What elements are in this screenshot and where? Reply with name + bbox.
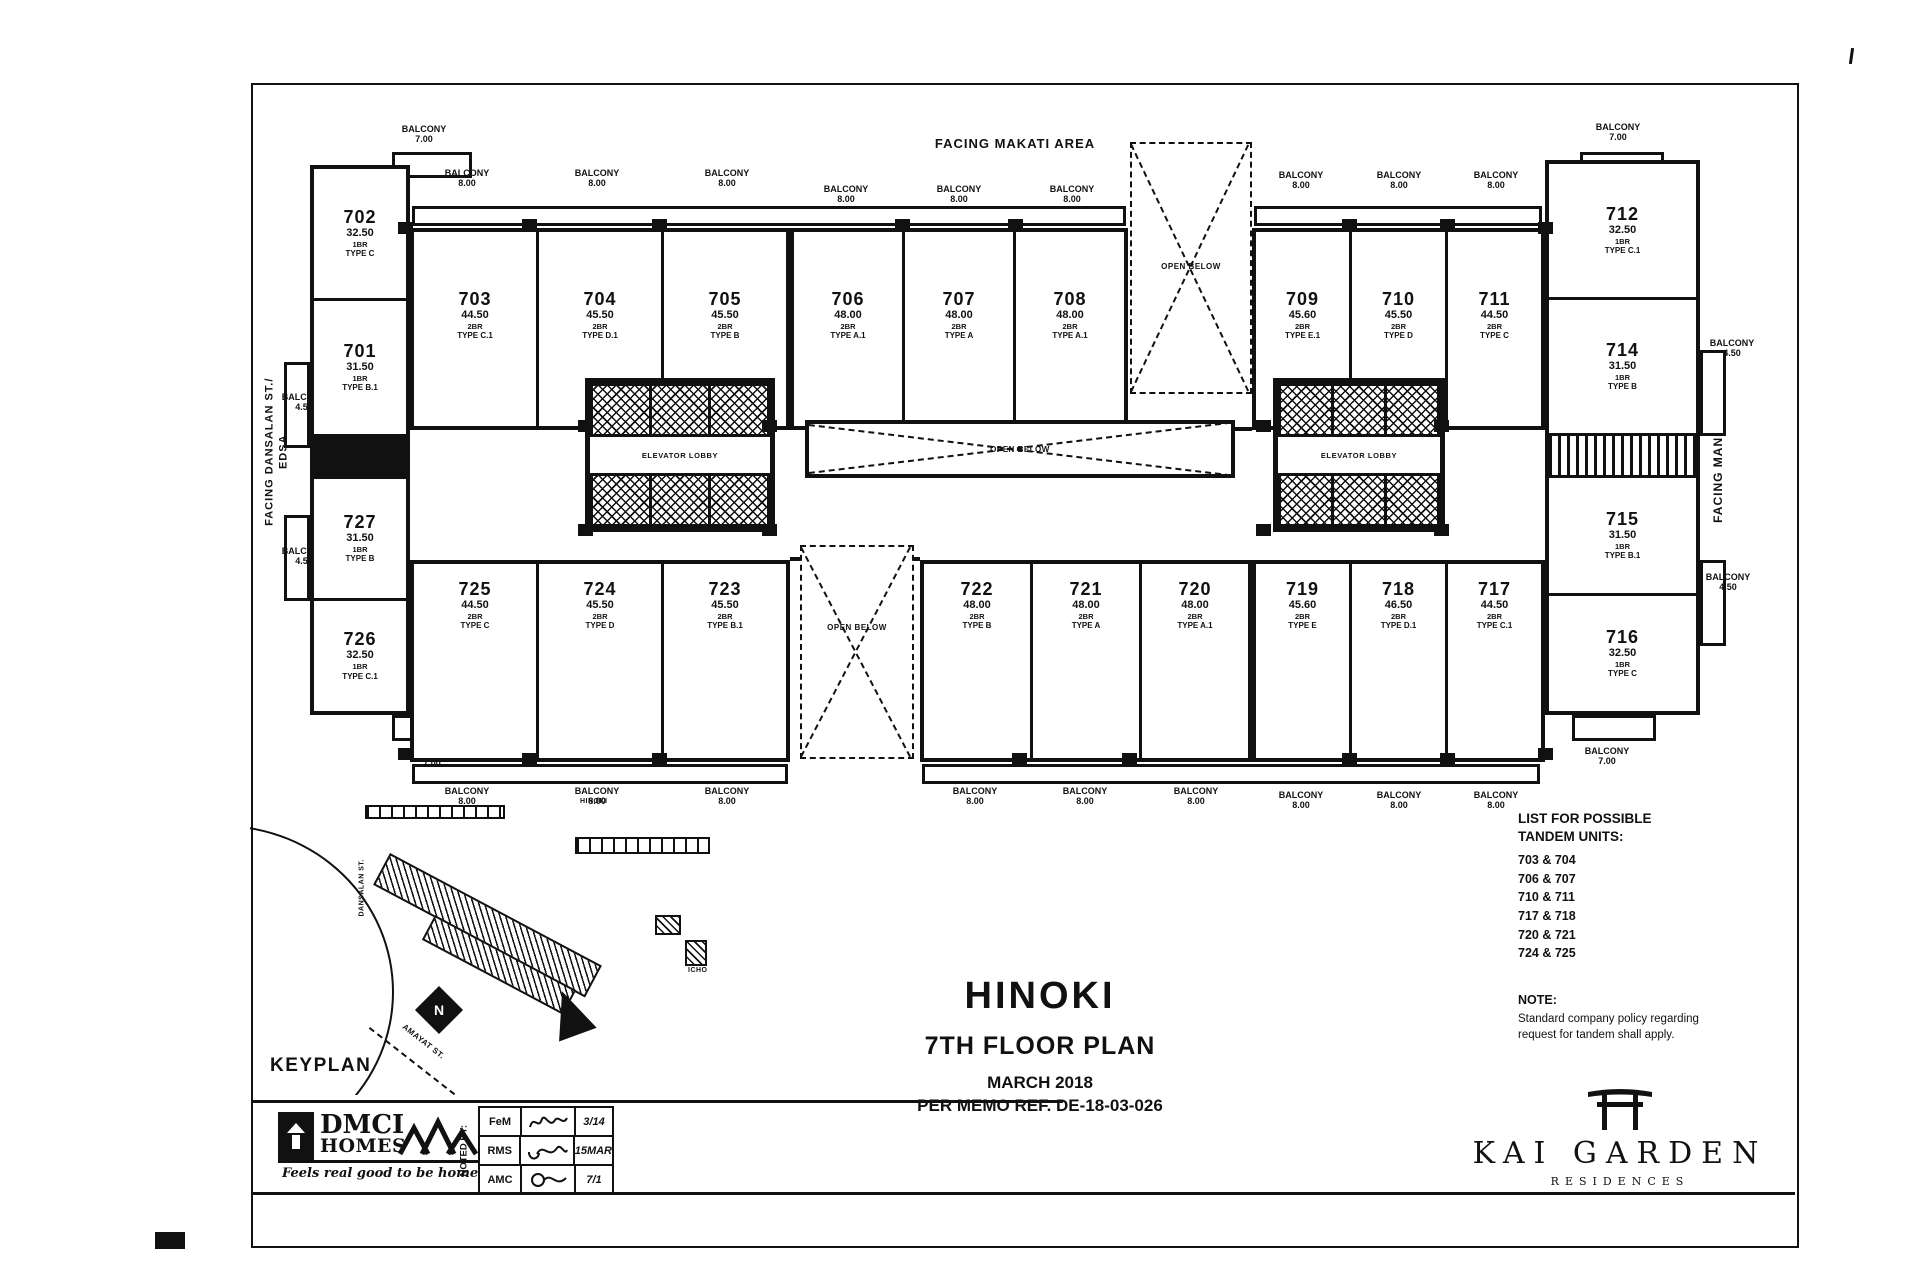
unit-720: 720 48.00 2BR TYPE A.1 — [1142, 564, 1248, 758]
keyplan-building — [655, 915, 681, 935]
table-row: AMC 7/1 — [480, 1166, 612, 1193]
column — [762, 420, 777, 432]
tandem-pair: 706 & 707 — [1518, 872, 1778, 888]
open-below-label: OPEN BELOW — [1132, 262, 1250, 271]
unit-no: 722 — [960, 580, 993, 599]
unit-no: 726 — [343, 630, 376, 649]
unit-area: 46.50 — [1385, 599, 1413, 612]
unit-area: 45.60 — [1289, 309, 1317, 322]
keyplan-road — [369, 1027, 528, 1095]
unit-type: TYPE A.1 — [1177, 621, 1212, 631]
unit-br: 2BR — [467, 612, 482, 621]
balcony-label: BALCONY4.50 — [1706, 572, 1751, 593]
unit-no: 707 — [942, 290, 975, 309]
tandem-pair: 720 & 721 — [1518, 928, 1778, 944]
project-title: HINOKI — [860, 975, 1220, 1018]
balcony-label: BALCONY8.00 — [824, 184, 869, 205]
unit-br: 2BR — [1295, 612, 1310, 621]
unit-no: 703 — [458, 290, 491, 309]
unit-type: TYPE D.1 — [582, 331, 618, 341]
unit-no: 706 — [831, 290, 864, 309]
balcony-label: BALCONY8.00 — [445, 168, 490, 189]
unit-area: 48.00 — [834, 309, 862, 322]
unit-area: 45.60 — [1289, 599, 1317, 612]
north-arrow-icon: N — [415, 986, 463, 1034]
unit-area: 31.50 — [346, 361, 374, 374]
signature-date: 7/1 — [576, 1166, 612, 1193]
note-line1: Standard company policy regarding — [1518, 1011, 1768, 1027]
dmci-house-icon — [278, 1112, 314, 1160]
unit-area: 48.00 — [1181, 599, 1209, 612]
unit-707: 707 48.00 2BR TYPE A — [905, 232, 1016, 426]
column — [578, 524, 593, 536]
unit-no: 705 — [708, 290, 741, 309]
elevator-lobby-east: ELEVATOR LOBBY — [1273, 378, 1445, 532]
title-block: HINOKI 7TH FLOOR PLAN MARCH 2018 PER MEM… — [860, 975, 1220, 1116]
unit-type: TYPE E.1 — [1285, 331, 1320, 341]
balcony-label: BALCONY8.00 — [937, 184, 982, 205]
elevator-lobby-label: ELEVATOR LOBBY — [1278, 437, 1440, 473]
unit-type: TYPE A — [945, 331, 974, 341]
dmci-logo: DMCI HOMES — [320, 1114, 406, 1155]
unit-area: 31.50 — [1609, 529, 1637, 542]
brand-subtitle: RESIDENCES — [1455, 1175, 1785, 1188]
unit-type: TYPE A.1 — [1052, 331, 1087, 341]
column — [1122, 753, 1137, 765]
unit-br: 2BR — [1487, 322, 1502, 331]
unit-br: 1BR — [1615, 542, 1630, 551]
unit-br: 1BR — [1615, 660, 1630, 669]
column — [652, 219, 667, 231]
keyplan-building-hinoki — [575, 837, 710, 854]
facing-dansalan-line1: FACING DANSALAN ST./ — [263, 357, 277, 547]
balcony-slab — [922, 764, 1540, 784]
unit-no: 704 — [583, 290, 616, 309]
keyplan-hinoki-label: HINOKI — [580, 798, 608, 805]
plan-date: MARCH 2018 — [860, 1073, 1220, 1093]
balcony-label: BALCONY8.00 — [575, 168, 620, 189]
unit-721: 721 48.00 2BR TYPE A — [1033, 564, 1142, 758]
unit-br: 2BR — [592, 612, 607, 621]
unit-726: 726 32.50 1BR TYPE C.1 — [314, 601, 406, 711]
elevator-shafts — [590, 473, 770, 527]
unit-area: 45.50 — [586, 309, 614, 322]
unit-area: 44.50 — [1481, 309, 1509, 322]
noted-by-table: FeM 3/14 RMS 15MAR AMC 7/1 — [478, 1106, 614, 1195]
unit-722: 722 48.00 2BR TYPE B — [924, 564, 1033, 758]
elevator-shafts — [1278, 383, 1440, 437]
balcony-label: BALCONY8.00 — [1279, 790, 1324, 811]
keyplan-map: HINOKI ICHO DANSALAN ST. AMAYAT ST. N KE… — [250, 795, 720, 1095]
unit-no: 727 — [343, 513, 376, 532]
balcony-label: BALCONY8.00 — [1377, 790, 1422, 811]
unit-area: 32.50 — [1609, 647, 1637, 660]
unit-br: 1BR — [1615, 373, 1630, 382]
unit-no: 714 — [1606, 341, 1639, 360]
unit-719: 719 45.60 2BR TYPE E — [1256, 564, 1352, 758]
unit-area: 31.50 — [1609, 360, 1637, 373]
open-below-label: OPEN BELOW — [809, 445, 1231, 454]
unit-725: 725 44.50 2BR TYPE C — [414, 564, 539, 758]
unit-type: TYPE B.1 — [707, 621, 743, 631]
signature — [522, 1108, 576, 1135]
open-below-void-bottom: OPEN BELOW — [800, 545, 914, 759]
unit-br: 2BR — [1391, 612, 1406, 621]
unit-no: 712 — [1606, 205, 1639, 224]
floor-plan-title: 7TH FLOOR PLAN — [860, 1032, 1220, 1061]
unit-714: 714 31.50 1BR TYPE B — [1549, 300, 1696, 436]
unit-br: 2BR — [1487, 612, 1502, 621]
balcony-slab — [412, 764, 788, 784]
unit-703: 703 44.50 2BR TYPE C.1 — [414, 232, 539, 426]
unit-type: TYPE C — [346, 249, 375, 259]
column — [1342, 753, 1357, 765]
unit-area: 45.50 — [711, 599, 739, 612]
unit-br: 2BR — [840, 322, 855, 331]
unit-strip-top-center: 706 48.00 2BR TYPE A.1 707 48.00 2BR TYP… — [790, 228, 1128, 430]
unit-br: 2BR — [717, 322, 732, 331]
unit-br: 2BR — [1187, 612, 1202, 621]
brand-name: KAI GARDEN — [1455, 1136, 1785, 1171]
unit-no: 710 — [1382, 290, 1415, 309]
unit-724: 724 45.50 2BR TYPE D — [539, 564, 664, 758]
kai-garden-logo: KAI GARDEN RESIDENCES — [1455, 1084, 1785, 1188]
unit-type: TYPE B — [711, 331, 740, 341]
unit-type: TYPE E — [1288, 621, 1316, 631]
tower-east: 712 32.50 1BR TYPE C.1 714 31.50 1BR TYP… — [1545, 160, 1700, 715]
column — [398, 748, 413, 760]
unit-no: 724 — [583, 580, 616, 599]
unit-area: 45.50 — [1385, 309, 1413, 322]
unit-no: 709 — [1286, 290, 1319, 309]
keyplan-building-bar — [365, 805, 505, 819]
signature — [522, 1166, 576, 1193]
facing-makati-label: FACING MAKATI AREA — [880, 136, 1150, 151]
elevator-shafts — [1278, 473, 1440, 527]
unit-718: 718 46.50 2BR TYPE D.1 — [1352, 564, 1448, 758]
unit-type: TYPE D — [586, 621, 615, 631]
memo-reference: PER MEMO REF. DE-18-03-026 — [860, 1096, 1220, 1116]
balcony-label: BALCONY8.00 — [1050, 184, 1095, 205]
column — [1342, 219, 1357, 231]
unit-br: 2BR — [592, 322, 607, 331]
unit-no: 720 — [1178, 580, 1211, 599]
tandem-list: LIST FOR POSSIBLE TANDEM UNITS: 703 & 70… — [1518, 810, 1778, 962]
floor-plan-sheet: FACING MAKATI AREA FACING AMENITIES FACI… — [0, 0, 1920, 1270]
unit-area: 32.50 — [346, 649, 374, 662]
unit-702: 702 32.50 1BR TYPE C — [314, 169, 406, 301]
approver-initials: RMS — [480, 1137, 521, 1164]
stair-core — [314, 437, 406, 479]
note-block: NOTE: Standard company policy regarding … — [1518, 993, 1768, 1043]
balcony-label: BALCONY4.50 — [1710, 338, 1755, 359]
keyplan-building-cluster — [373, 853, 602, 997]
unit-715: 715 31.50 1BR TYPE B.1 — [1549, 478, 1696, 596]
approver-initials: FeM — [480, 1108, 522, 1135]
unit-type: TYPE C.1 — [342, 672, 378, 682]
unit-br: 1BR — [352, 662, 367, 671]
balcony-label: BALCONY8.00 — [1063, 786, 1108, 807]
balcony-label: BALCONY8.00 — [953, 786, 998, 807]
unit-no: 716 — [1606, 628, 1639, 647]
tandem-pair: 710 & 711 — [1518, 890, 1778, 906]
balcony-label: BALCONY8.00 — [705, 168, 750, 189]
column — [522, 753, 537, 765]
unit-area: 48.00 — [963, 599, 991, 612]
torii-gate-icon — [1585, 1084, 1655, 1130]
elevator-lobby-label: ELEVATOR LOBBY — [590, 437, 770, 473]
tandem-pair: 724 & 725 — [1518, 946, 1778, 962]
balcony-label: BALCONY8.00 — [1174, 786, 1219, 807]
unit-area: 32.50 — [1609, 224, 1637, 237]
unit-no: 718 — [1382, 580, 1415, 599]
unit-no: 721 — [1069, 580, 1102, 599]
column — [1440, 753, 1455, 765]
unit-br: 2BR — [717, 612, 732, 621]
unit-727: 727 31.50 1BR TYPE B — [314, 479, 406, 601]
signature-date: 15MAR — [575, 1137, 612, 1164]
keyplan-icho-label: ICHO — [688, 967, 708, 974]
unit-706: 706 48.00 2BR TYPE A.1 — [794, 232, 905, 426]
table-row: FeM 3/14 — [480, 1108, 612, 1137]
unit-type: TYPE C.1 — [1477, 621, 1513, 631]
unit-type: TYPE B — [963, 621, 992, 631]
unit-strip-bottom-right: 719 45.60 2BR TYPE E 718 46.50 2BR TYPE … — [1252, 560, 1545, 762]
column — [398, 222, 413, 234]
unit-no: 723 — [708, 580, 741, 599]
keyplan-dansalan-label: DANSALAN ST. — [359, 817, 366, 917]
unit-br: 2BR — [1062, 322, 1077, 331]
unit-area: 44.50 — [461, 309, 489, 322]
tower-west: 702 32.50 1BR TYPE C 701 31.50 1BR TYPE … — [310, 165, 410, 715]
open-below-label: OPEN BELOW — [802, 623, 912, 632]
scan-artifact — [1849, 48, 1854, 64]
unit-area: 44.50 — [461, 599, 489, 612]
unit-br: 2BR — [1391, 322, 1406, 331]
tandem-pair: 703 & 704 — [1518, 853, 1778, 869]
unit-type: TYPE C — [1608, 669, 1637, 679]
north-letter: N — [434, 1002, 444, 1018]
keyplan-title: KEYPLAN — [270, 1055, 371, 1077]
unit-type: TYPE B.1 — [1605, 551, 1641, 561]
column — [522, 219, 537, 231]
unit-no: 711 — [1478, 290, 1510, 309]
unit-no: 708 — [1053, 290, 1086, 309]
balcony-label: BALCONY8.00 — [1377, 170, 1422, 191]
column — [578, 420, 593, 432]
dmci-tagline: Feels real good to be home — [282, 1166, 478, 1181]
note-line2: request for tandem shall apply. — [1518, 1027, 1768, 1043]
column — [1538, 222, 1553, 234]
column — [1434, 420, 1449, 432]
unit-type: TYPE C.1 — [457, 331, 493, 341]
unit-no: 719 — [1286, 580, 1319, 599]
note-label: NOTE: — [1518, 993, 1768, 1007]
keyplan-building — [685, 940, 707, 966]
balcony-slab — [1254, 206, 1542, 226]
signature-date: 3/14 — [576, 1108, 612, 1135]
unit-type: TYPE D.1 — [1381, 621, 1417, 631]
footer-divider — [253, 1100, 1063, 1103]
unit-701: 701 31.50 1BR TYPE B.1 — [314, 301, 406, 437]
table-row: RMS 15MAR — [480, 1137, 612, 1166]
unit-no: 701 — [343, 342, 376, 361]
open-below-atrium: OPEN BELOW — [805, 420, 1235, 478]
unit-br: 2BR — [1078, 612, 1093, 621]
dmci-underline — [278, 1160, 478, 1163]
unit-708: 708 48.00 2BR TYPE A.1 — [1016, 232, 1124, 426]
balcony-slab — [1572, 715, 1656, 741]
tandem-heading-line1: LIST FOR POSSIBLE — [1518, 810, 1778, 828]
balcony-label: BALCONY8.00 — [1474, 790, 1519, 811]
scan-artifact — [155, 1232, 185, 1249]
unit-area: 31.50 — [346, 532, 374, 545]
unit-717: 717 44.50 2BR TYPE C.1 — [1448, 564, 1541, 758]
column — [1256, 420, 1271, 432]
approver-initials: AMC — [480, 1166, 522, 1193]
column — [762, 524, 777, 536]
column — [895, 219, 910, 231]
column — [1440, 219, 1455, 231]
unit-br: 1BR — [1615, 237, 1630, 246]
unit-712: 712 32.50 1BR TYPE C.1 — [1549, 164, 1696, 300]
unit-area: 48.00 — [945, 309, 973, 322]
elevator-lobby-west: ELEVATOR LOBBY — [585, 378, 775, 532]
unit-no: 717 — [1478, 580, 1511, 599]
unit-type: TYPE C — [1480, 331, 1509, 341]
unit-711: 711 44.50 2BR TYPE C — [1448, 232, 1541, 426]
unit-br: 1BR — [352, 545, 367, 554]
column — [1434, 524, 1449, 536]
unit-no: 715 — [1606, 510, 1639, 529]
unit-no: 725 — [458, 580, 491, 599]
tandem-heading-line2: TANDEM UNITS: — [1518, 828, 1778, 846]
unit-type: TYPE B.1 — [342, 383, 378, 393]
tandem-pair: 717 & 718 — [1518, 909, 1778, 925]
unit-type: TYPE C.1 — [1605, 246, 1641, 256]
unit-716: 716 32.50 1BR TYPE C — [1549, 596, 1696, 711]
unit-area: 32.50 — [346, 227, 374, 240]
unit-strip-bottom-center: 722 48.00 2BR TYPE B 721 48.00 2BR TYPE … — [920, 560, 1252, 762]
unit-723: 723 45.50 2BR TYPE B.1 — [664, 564, 786, 758]
unit-area: 45.50 — [586, 599, 614, 612]
balcony-label: BALCONY7.00 — [1596, 122, 1641, 143]
unit-type: TYPE D — [1384, 331, 1413, 341]
unit-br: 2BR — [969, 612, 984, 621]
unit-area: 44.50 — [1481, 599, 1509, 612]
elevator-shafts — [590, 383, 770, 437]
dmci-name-line2: HOMES — [320, 1138, 406, 1155]
column — [1538, 748, 1553, 760]
unit-type: TYPE B — [1608, 382, 1637, 392]
unit-br: 1BR — [352, 240, 367, 249]
unit-type: TYPE A.1 — [830, 331, 865, 341]
balcony-slab — [1700, 350, 1726, 436]
balcony-label: BALCONY7.00 — [1585, 746, 1630, 767]
open-below-void-top: OPEN BELOW — [1130, 142, 1252, 394]
signature — [521, 1137, 574, 1164]
unit-br: 2BR — [951, 322, 966, 331]
unit-no: 702 — [343, 208, 376, 227]
unit-area: 48.00 — [1056, 309, 1084, 322]
unit-type: TYPE C — [461, 621, 490, 631]
unit-br: 2BR — [467, 322, 482, 331]
column — [1012, 753, 1027, 765]
column — [1256, 524, 1271, 536]
balcony-label: BALCONY8.00 — [1279, 170, 1324, 191]
unit-type: TYPE A — [1072, 621, 1101, 631]
balcony-label: BALCONY8.00 — [1474, 170, 1519, 191]
column — [1008, 219, 1023, 231]
balcony-label: BALCONY7.00 — [402, 124, 447, 145]
column — [652, 753, 667, 765]
unit-br: 1BR — [352, 374, 367, 383]
unit-br: 2BR — [1295, 322, 1310, 331]
unit-area: 45.50 — [711, 309, 739, 322]
unit-type: TYPE B — [346, 554, 375, 564]
noted-by-label: NOTED BY: — [459, 1115, 470, 1177]
unit-area: 48.00 — [1072, 599, 1100, 612]
stair-core — [1549, 436, 1696, 478]
unit-strip-bottom-left: 725 44.50 2BR TYPE C 724 45.50 2BR TYPE … — [410, 560, 790, 762]
